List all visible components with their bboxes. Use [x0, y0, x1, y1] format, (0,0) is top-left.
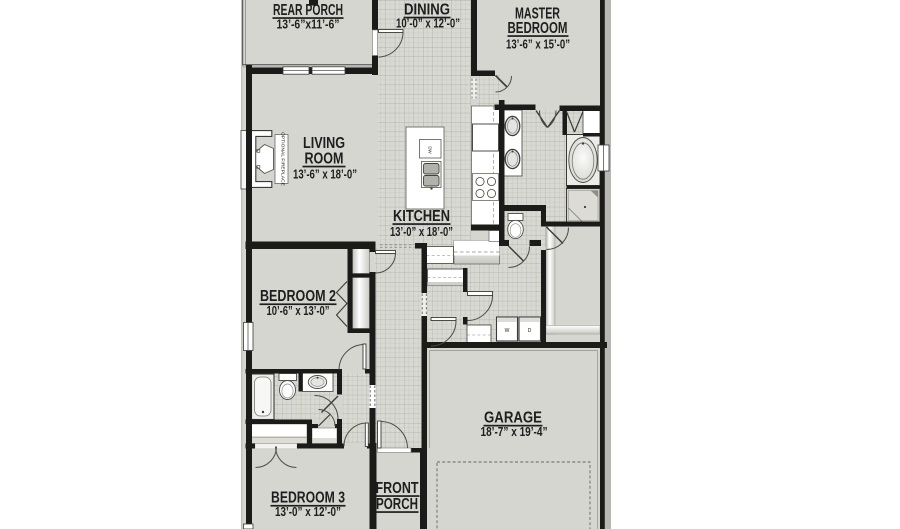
- svg-text:LIVING: LIVING: [303, 135, 345, 152]
- svg-text:GARAGE: GARAGE: [484, 410, 542, 427]
- svg-text:13’-0” x 12’-0”: 13’-0” x 12’-0”: [275, 505, 341, 519]
- svg-text:BEDROOM: BEDROOM: [508, 20, 568, 37]
- svg-text:D: D: [528, 328, 532, 334]
- svg-text:10’-6” x 13’-0”: 10’-6” x 13’-0”: [267, 304, 330, 318]
- svg-text:13’-6”x11’-6”: 13’-6”x11’-6”: [277, 18, 340, 32]
- svg-text:REAR PORCH: REAR PORCH: [273, 2, 343, 19]
- svg-text:BEDROOM 3: BEDROOM 3: [271, 490, 345, 507]
- svg-text:18’-7” x 19’-4”: 18’-7” x 19’-4”: [481, 425, 548, 439]
- svg-text:13’-0” x 18’-0”: 13’-0” x 18’-0”: [390, 225, 453, 239]
- svg-text:FRONT: FRONT: [376, 480, 419, 497]
- svg-text:ROOM: ROOM: [305, 151, 344, 168]
- svg-text:OPTIONAL FIREPLACE: OPTIONAL FIREPLACE: [280, 132, 286, 186]
- svg-text:13’-6” x 18’-0”: 13’-6” x 18’-0”: [293, 168, 357, 182]
- svg-text:DW: DW: [428, 146, 433, 154]
- svg-text:BEDROOM 2: BEDROOM 2: [260, 288, 336, 305]
- svg-text:W: W: [505, 328, 510, 334]
- svg-text:13’-6” x 15’-0”: 13’-6” x 15’-0”: [506, 38, 570, 52]
- svg-text:KITCHEN: KITCHEN: [393, 208, 450, 225]
- svg-text:10’-0” x 12’-0”: 10’-0” x 12’-0”: [396, 17, 460, 31]
- svg-text:PORCH: PORCH: [376, 496, 418, 513]
